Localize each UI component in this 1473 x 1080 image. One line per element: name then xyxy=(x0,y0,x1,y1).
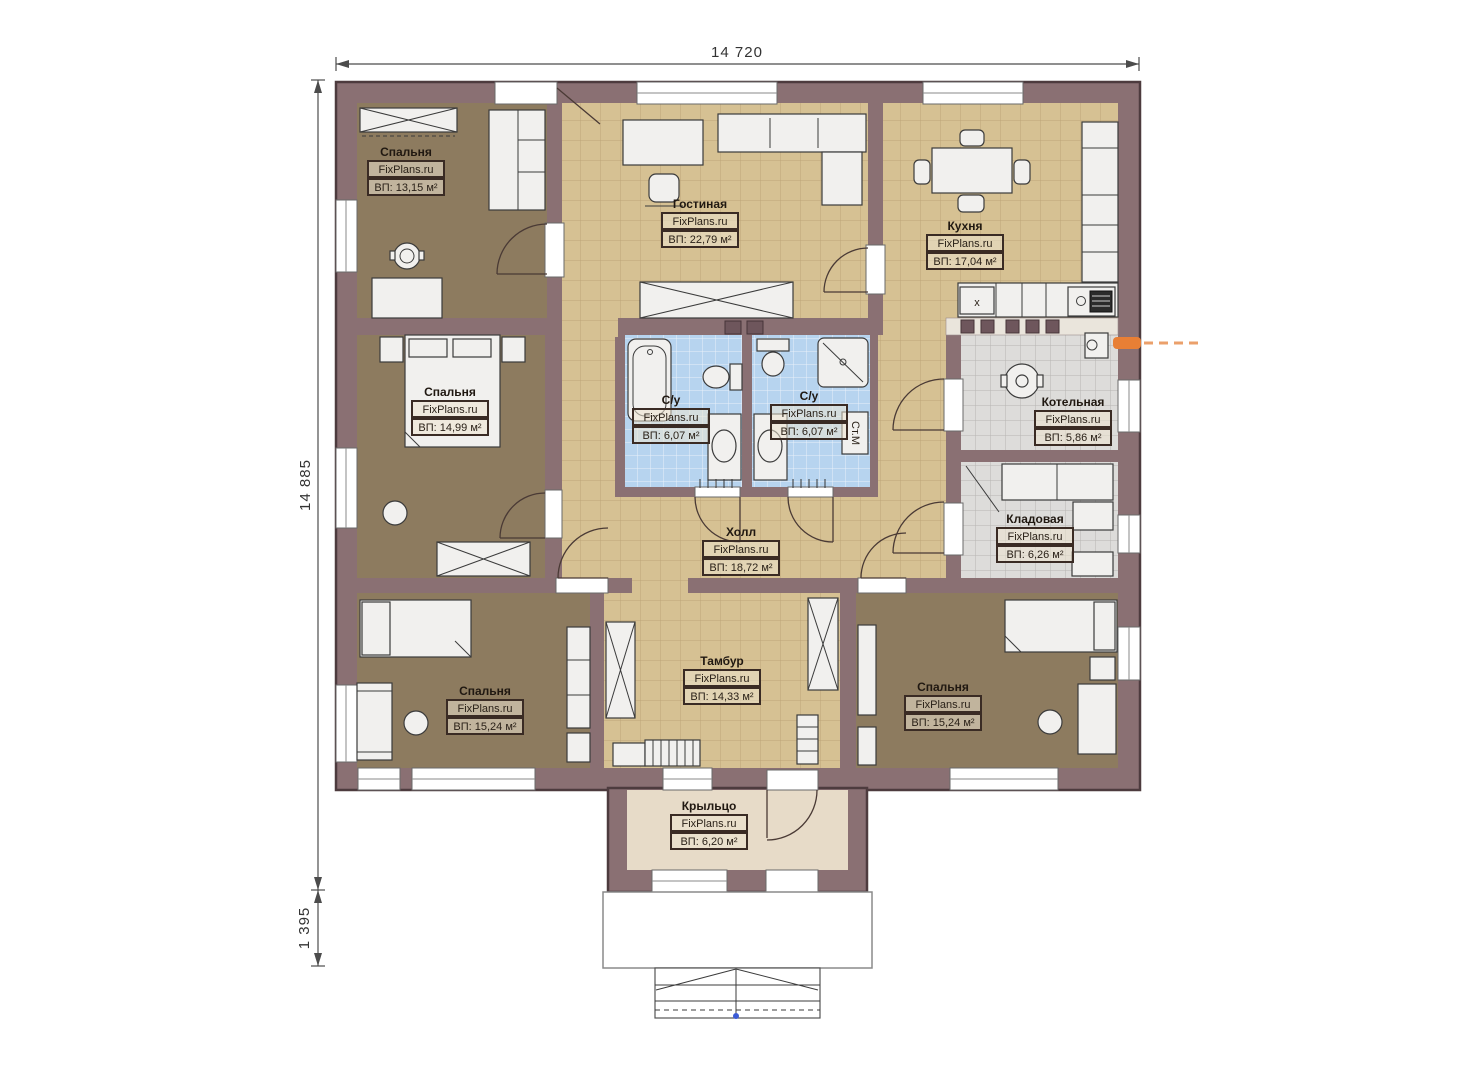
window xyxy=(412,768,535,790)
area-text: ВП: 14,33 м² xyxy=(690,691,754,703)
area-text: ВП: 6,20 м² xyxy=(680,836,737,848)
tv-stand xyxy=(640,282,793,318)
room-label-boiler: Котельная FixPlans.ru ВП: 5,86 м² xyxy=(1035,395,1111,445)
cabinet xyxy=(858,727,876,765)
area-text: ВП: 22,79 м² xyxy=(668,234,732,246)
area-text: ВП: 15,24 м² xyxy=(911,717,975,729)
window xyxy=(950,768,1058,790)
washing-machine-label: Ст.М xyxy=(849,421,861,445)
window xyxy=(336,448,357,528)
brand-text: FixPlans.ru xyxy=(643,412,698,424)
room-name: Спальня xyxy=(917,680,969,694)
sink-vanity xyxy=(708,414,741,480)
room-name: Котельная xyxy=(1042,395,1105,409)
stairs xyxy=(655,968,820,1019)
room-name: Спальня xyxy=(380,145,432,159)
nightstand xyxy=(1090,657,1115,680)
brand-text: FixPlans.ru xyxy=(713,544,768,556)
nightstand xyxy=(380,337,403,362)
shower xyxy=(818,338,868,387)
window xyxy=(1118,515,1140,553)
wardrobe xyxy=(437,542,530,576)
opening-kitchen-corridor xyxy=(883,316,946,337)
chair xyxy=(1038,710,1062,734)
room-name: Кладовая xyxy=(1006,512,1063,526)
room-name: Кухня xyxy=(947,219,982,233)
couch xyxy=(357,683,392,760)
gas-meter xyxy=(1085,333,1108,358)
room-name: Спальня xyxy=(424,385,476,399)
single-bed xyxy=(360,600,471,657)
brand-text: FixPlans.ru xyxy=(1045,414,1100,426)
area-text: ВП: 18,72 м² xyxy=(709,562,773,574)
area-text: ВП: 15,24 м² xyxy=(453,721,517,733)
brand-text: FixPlans.ru xyxy=(1007,531,1062,543)
bench xyxy=(613,740,700,766)
room-name: С/у xyxy=(662,393,681,407)
single-bed xyxy=(1005,600,1117,652)
desk xyxy=(1078,684,1116,754)
brand-text: FixPlans.ru xyxy=(781,408,836,420)
room-label-storage: Кладовая FixPlans.ru ВП: 6,26 м² xyxy=(997,512,1073,562)
room-name: Гостиная xyxy=(673,197,727,211)
entrance-pad xyxy=(603,892,872,968)
nightstand xyxy=(502,337,525,362)
dimension-porch-value: 1 395 xyxy=(296,907,313,950)
area-text: ВП: 14,99 м² xyxy=(418,422,482,434)
brand-text: FixPlans.ru xyxy=(915,699,970,711)
room-label-porch: Крыльцо FixPlans.ru ВП: 6,20 м² xyxy=(671,799,747,849)
chair xyxy=(404,711,428,735)
area-text: ВП: 13,15 м² xyxy=(374,182,438,194)
window xyxy=(1118,627,1140,680)
entrance-door-gap xyxy=(495,82,557,104)
opening-living-hall xyxy=(562,316,618,337)
room-name: Спальня xyxy=(459,684,511,698)
dimension-left: 14 885 xyxy=(297,80,325,890)
stairs-marker-dot xyxy=(733,1013,739,1019)
gas-line xyxy=(1113,337,1200,349)
window xyxy=(336,685,357,762)
window xyxy=(663,768,712,790)
stove-mark: x xyxy=(974,297,980,309)
cabinet xyxy=(489,110,545,210)
area-text: ВП: 6,07 м² xyxy=(642,430,699,442)
room-name: С/у xyxy=(800,389,819,403)
kitchen-counter-right xyxy=(1082,122,1118,282)
area-text: ВП: 17,04 м² xyxy=(933,256,997,268)
stool xyxy=(383,501,407,525)
toilet xyxy=(703,364,742,390)
brand-text: FixPlans.ru xyxy=(378,164,433,176)
room-label-living: Гостиная FixPlans.ru ВП: 22,79 м² xyxy=(662,197,738,247)
brand-text: FixPlans.ru xyxy=(937,238,992,250)
cabinet xyxy=(567,627,590,762)
desk xyxy=(623,120,703,165)
room-name: Холл xyxy=(726,525,756,539)
shoe-rack xyxy=(797,715,818,764)
area-text: ВП: 6,07 м² xyxy=(780,426,837,438)
brand-text: FixPlans.ru xyxy=(422,404,477,416)
brand-text: FixPlans.ru xyxy=(672,216,727,228)
brand-text: FixPlans.ru xyxy=(694,673,749,685)
dimension-top: 14 720 xyxy=(336,44,1139,71)
wardrobe xyxy=(360,108,457,136)
window xyxy=(1118,380,1140,432)
cabinet xyxy=(858,625,876,715)
wardrobe xyxy=(606,622,635,718)
brand-text: FixPlans.ru xyxy=(681,818,736,830)
dimension-width-value: 14 720 xyxy=(711,44,763,61)
window xyxy=(923,82,1023,104)
room-name: Крыльцо xyxy=(682,799,737,813)
area-text: ВП: 6,26 м² xyxy=(1006,549,1063,561)
window xyxy=(652,870,727,892)
area-text: ВП: 5,86 м² xyxy=(1044,432,1101,444)
dimension-porch: 1 395 xyxy=(296,890,325,966)
dresser xyxy=(372,278,442,318)
brand-text: FixPlans.ru xyxy=(457,703,512,715)
kitchen-counter-bottom: x xyxy=(958,283,1118,317)
kitchen-sink xyxy=(1068,287,1115,316)
wardrobe xyxy=(808,598,838,690)
dimension-height-value: 14 885 xyxy=(297,459,314,511)
window xyxy=(637,82,777,104)
window xyxy=(336,200,357,272)
room-name: Тамбур xyxy=(700,654,744,668)
opening-hall-vestibule xyxy=(632,578,688,593)
floor-plan: x xyxy=(0,0,1473,1080)
floor-plan-page: x xyxy=(0,0,1473,1080)
window xyxy=(358,768,400,790)
